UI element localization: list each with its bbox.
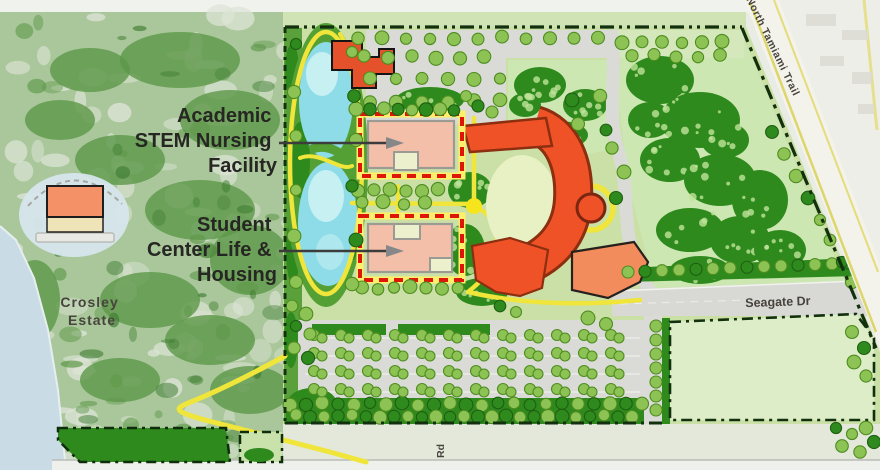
parcel-trapezoid bbox=[58, 428, 230, 462]
estate-building-lower bbox=[47, 217, 103, 232]
label-rd: Rd bbox=[435, 444, 447, 458]
estate-terrace bbox=[36, 233, 114, 242]
label-seagate-dr: Seagate Dr bbox=[745, 294, 811, 310]
rotunda-building bbox=[577, 194, 605, 222]
crosley-mansion-building bbox=[47, 186, 103, 217]
crosley-estate-site bbox=[19, 173, 129, 257]
stem-facility-highlight bbox=[360, 114, 462, 176]
campus-master-plan-map: Academic STEM Nursing Facility Student C… bbox=[0, 0, 880, 470]
map-canvas: Academic STEM Nursing Facility Student C… bbox=[0, 0, 880, 470]
south-parcels bbox=[58, 428, 282, 462]
student-center-highlight bbox=[360, 216, 462, 280]
open-field bbox=[670, 314, 874, 420]
